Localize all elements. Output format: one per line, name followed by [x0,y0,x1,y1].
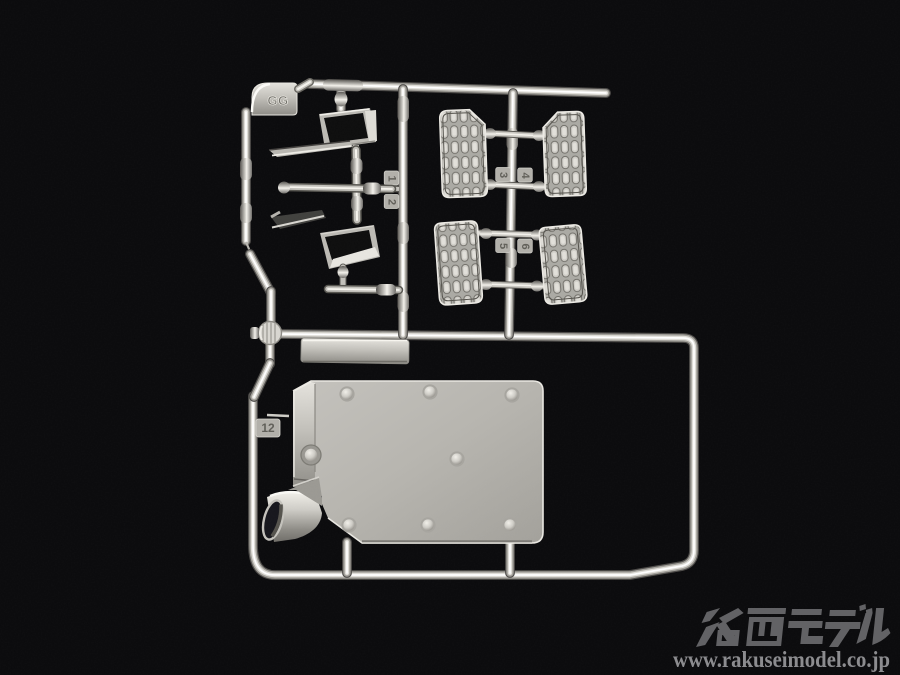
svg-text:www.rakuseimodel.co.jp: www.rakuseimodel.co.jp [673,647,890,673]
